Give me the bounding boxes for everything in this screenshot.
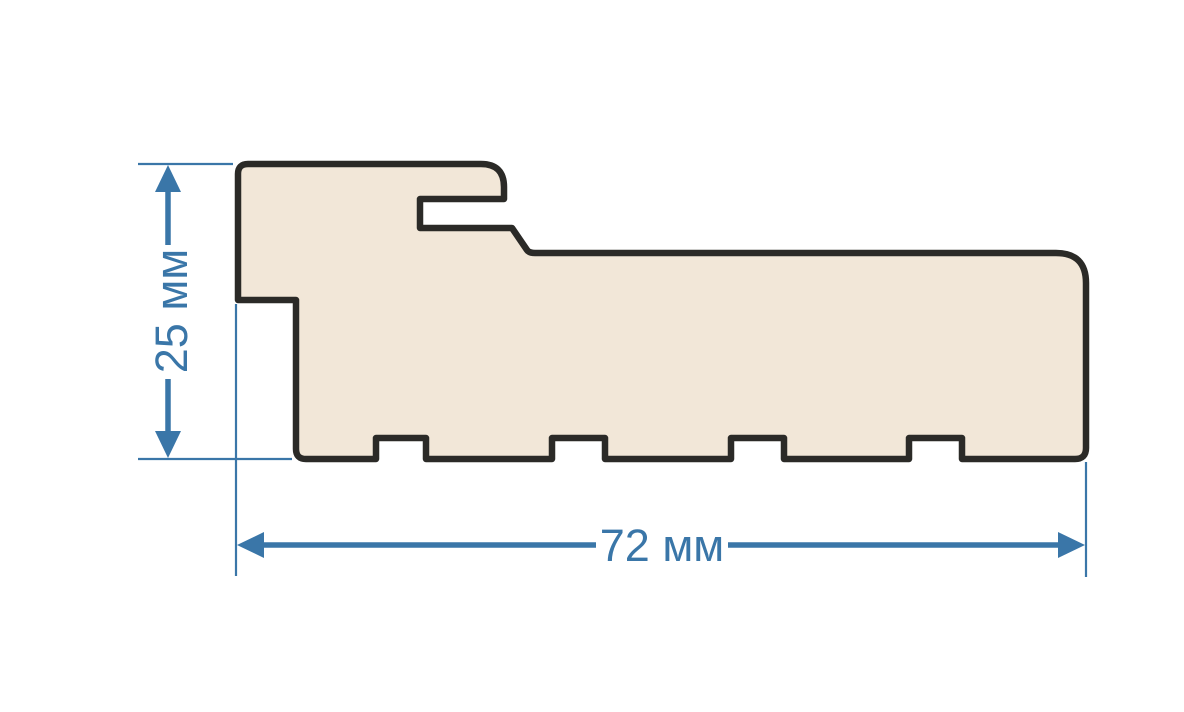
technical-drawing: 25 мм 72 мм [0,0,1184,712]
arrow-left-icon [237,532,264,558]
width-dimension-label: 72 мм [600,520,724,571]
profile-outline [238,164,1086,459]
height-dimension-label: 25 мм [146,249,197,373]
drawing-canvas: 25 мм 72 мм [0,0,1184,712]
arrow-up-icon [155,165,181,192]
arrow-down-icon [155,431,181,458]
arrow-right-icon [1058,532,1085,558]
